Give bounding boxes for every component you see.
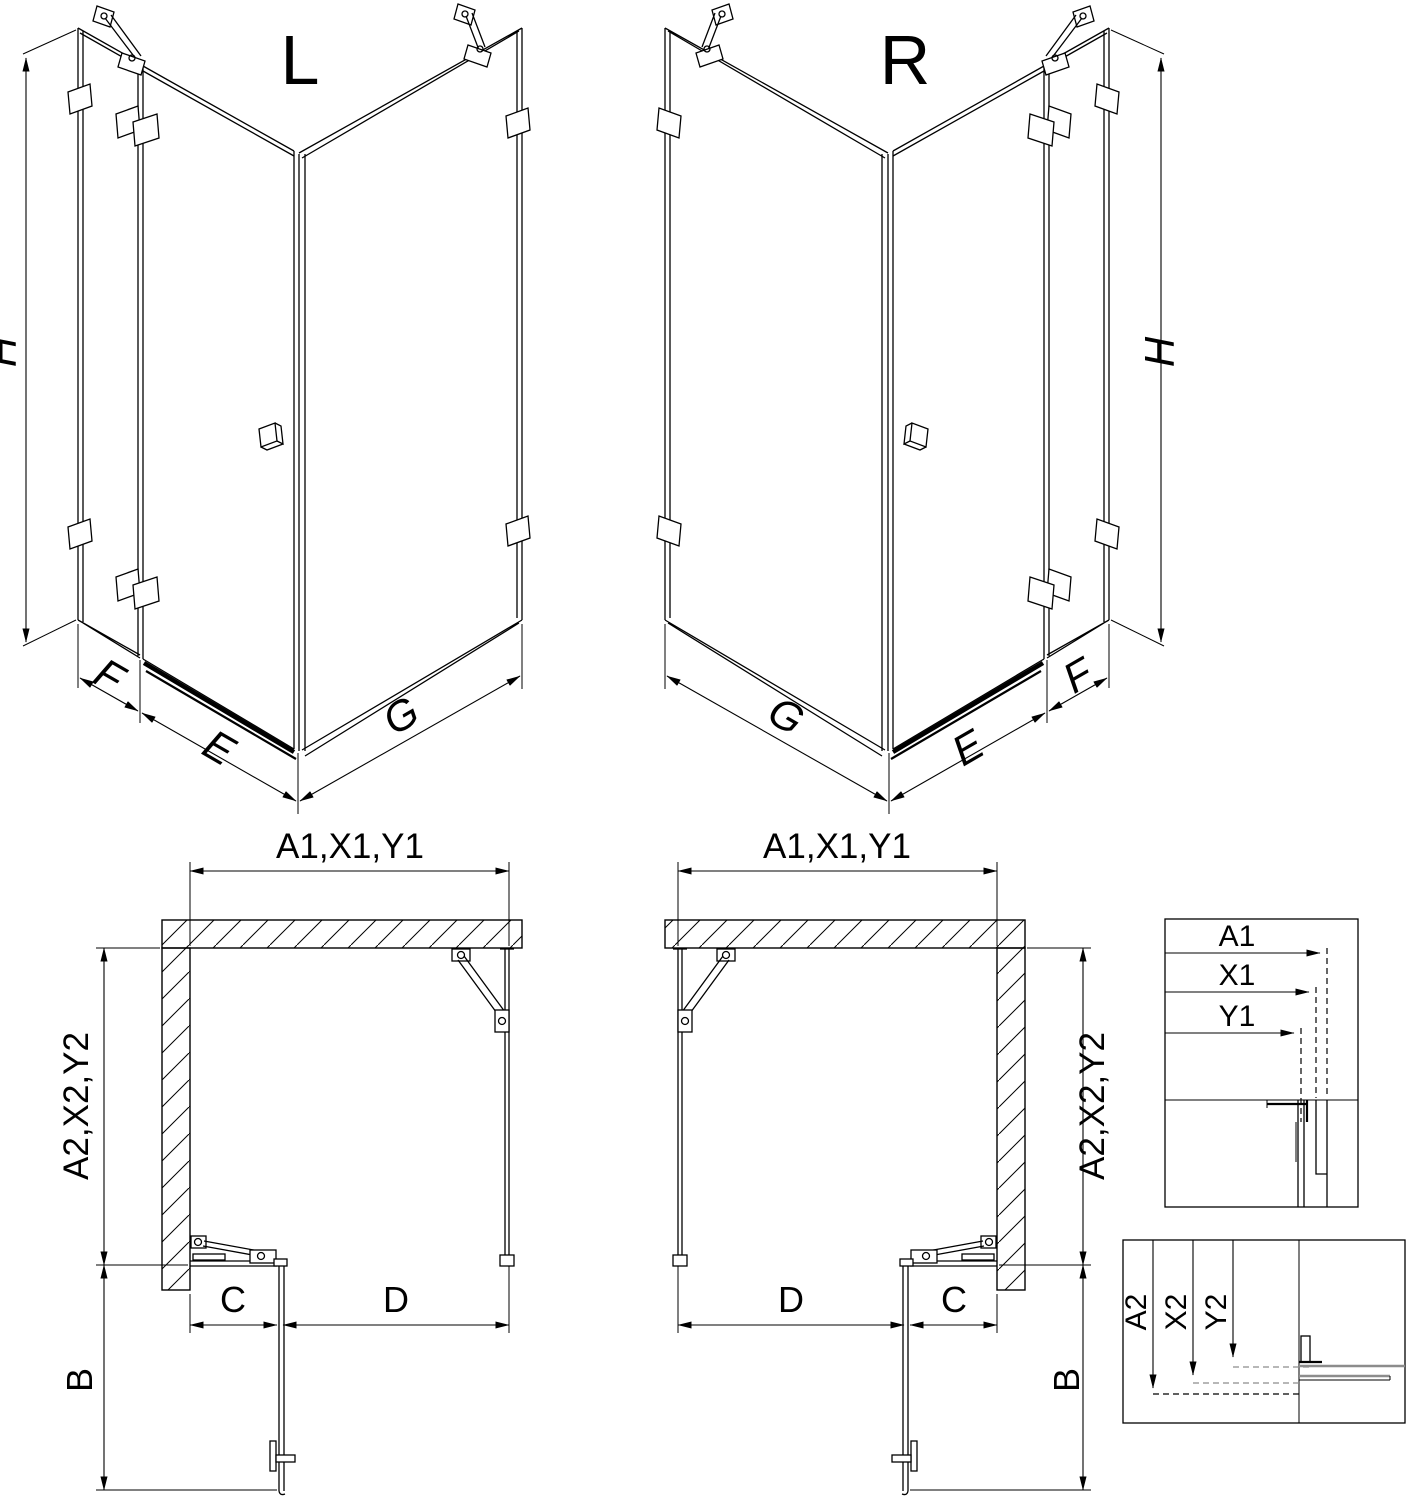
dim-label-c-left: C (220, 1279, 246, 1320)
dim-label-height-right: H (1136, 336, 1183, 367)
wall-section (997, 948, 1025, 1290)
dim-label-c-right: C (941, 1279, 967, 1320)
fixed-panel-glass (299, 28, 522, 158)
dim-label-width-group-left: A1,X1,Y1 (276, 827, 424, 866)
variant-label-left: L (281, 21, 320, 99)
dim-label-d-left: D (383, 1279, 409, 1320)
wall-section (665, 920, 1025, 948)
dim-label-height-left: H (0, 336, 25, 367)
dim-label-side-left: F (86, 649, 134, 704)
detail-dim-a1: A1 (1219, 920, 1256, 953)
door-knob (259, 423, 283, 450)
variant-label-right: R (880, 21, 931, 99)
detail-dim-x2: X2 (1160, 1294, 1193, 1331)
wall-bracket (68, 84, 92, 114)
dim-label-width-group-right: A1,X1,Y1 (763, 827, 911, 866)
shower-enclosure-diagram: L R H F E G H F E G A1,X1,Y1 A2,X2,Y2 B … (0, 0, 1410, 1502)
door-glass (143, 66, 294, 156)
detail-dim-a2: A2 (1120, 1294, 1153, 1331)
technical-drawing-page: L R H F E G H F E G A1,X1,Y1 A2,X2,Y2 B … (0, 0, 1410, 1502)
corner-post (294, 151, 305, 751)
dim-label-side-right: F (1055, 648, 1103, 703)
detail-dim-y2: Y2 (1200, 1294, 1233, 1331)
dim-label-d-right: D (778, 1279, 804, 1320)
dim-label-b-right: B (1046, 1368, 1087, 1392)
door-hinge-stile (138, 63, 143, 659)
wall-bracket (68, 519, 92, 549)
door-handle-plan (270, 1441, 276, 1471)
detail-dim-y1: Y1 (1219, 1000, 1256, 1033)
dim-label-panel-right: G (760, 687, 812, 744)
plan-view-right-geometry (673, 862, 1091, 1495)
wall-section (162, 948, 190, 1290)
wall-bracket (506, 108, 530, 138)
dim-label-panel-left: G (375, 687, 427, 744)
wall-section (162, 920, 522, 948)
dim-label-depth-group-right: A2,X2,Y2 (1073, 1032, 1112, 1180)
detail-view-width (1165, 919, 1358, 1207)
detail-view-depth (1123, 1240, 1405, 1423)
dim-label-depth-group-left: A2,X2,Y2 (57, 1032, 96, 1180)
dim-label-b-left: B (59, 1368, 100, 1392)
detail-dim-x1: X1 (1219, 959, 1256, 992)
support-brace (454, 4, 491, 67)
wall-bracket (506, 516, 530, 546)
support-brace-plan (452, 949, 470, 961)
plan-view-left-geometry (96, 862, 514, 1495)
